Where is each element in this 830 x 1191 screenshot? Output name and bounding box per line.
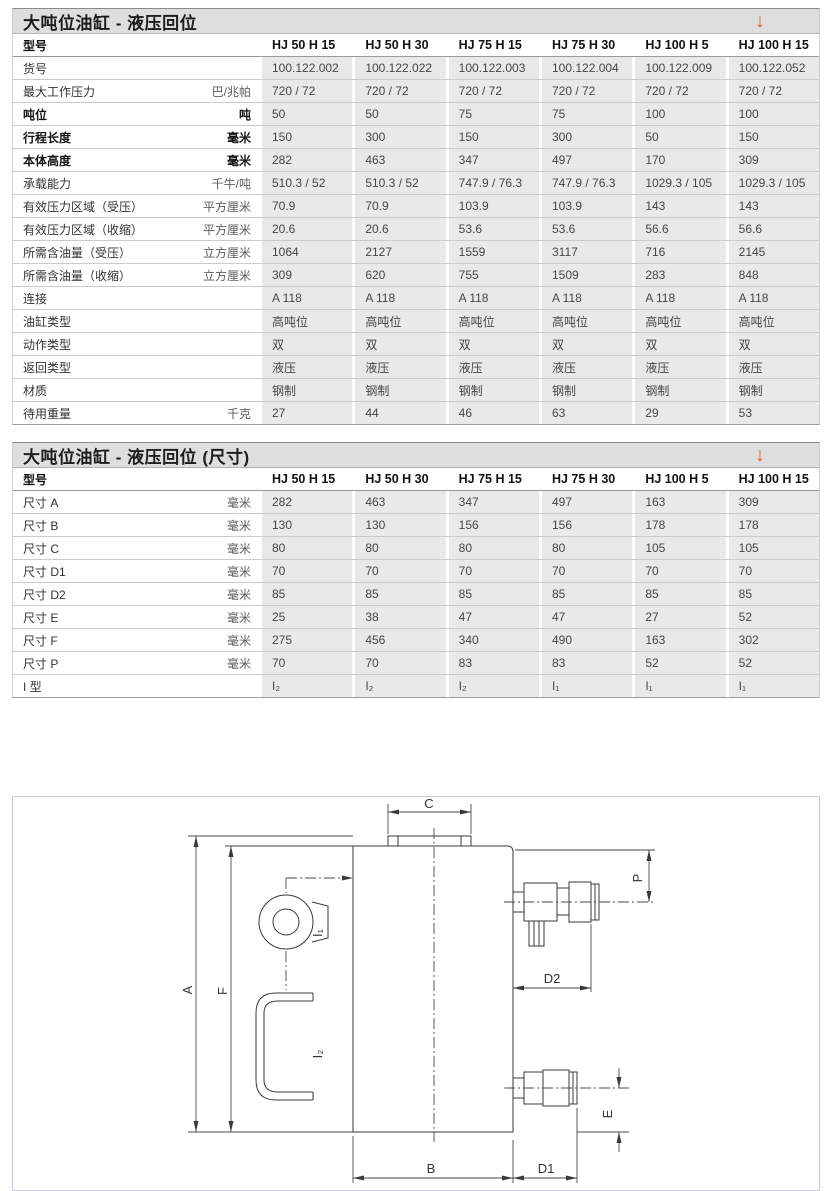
row-label-cell: 材质 [13, 379, 259, 401]
row-unit: 千克 [227, 405, 251, 422]
dimension-B-D1: B D1 [353, 1108, 577, 1183]
model-header-label: 型号 [13, 34, 259, 56]
label-I1: I₁ [310, 928, 325, 937]
table-row: 尺寸 P毫米707083835252 [13, 652, 819, 675]
table-row: 尺寸 D1毫米707070707070 [13, 560, 819, 583]
value-cell: 747.9 / 76.3 [542, 172, 632, 194]
value-cell: 85 [729, 583, 819, 605]
value-cell: 70 [542, 560, 632, 582]
table-row: 有效压力区域（受压）平方厘米70.970.9103.9103.9143143 [13, 195, 819, 218]
value-cell: 80 [449, 537, 539, 559]
value-cell: 100.122.003 [449, 57, 539, 79]
row-unit: 千牛/吨 [212, 175, 251, 192]
value-cell: 163 [635, 629, 725, 651]
value-cell: A 118 [635, 287, 725, 309]
row-label: 尺寸 B [23, 517, 58, 534]
row-unit: 毫米 [227, 540, 251, 557]
model-header-cell: HJ 50 H 15 [262, 468, 352, 490]
value-cell: 75 [542, 103, 632, 125]
value-cell: 38 [355, 606, 445, 628]
value-cell: A 118 [355, 287, 445, 309]
value-cell: 275 [262, 629, 352, 651]
row-label: 最大工作压力 [23, 83, 95, 100]
value-cell: 143 [729, 195, 819, 217]
value-cell: 53.6 [449, 218, 539, 240]
value-cell: 双 [542, 333, 632, 355]
value-cell: 463 [355, 491, 445, 513]
value-cell: 103.9 [449, 195, 539, 217]
row-unit: 毫米 [227, 129, 251, 146]
value-cell: 105 [635, 537, 725, 559]
row-label: 行程长度 [23, 129, 71, 146]
technical-drawing-box: A F C [12, 796, 820, 1191]
row-label: 尺寸 E [23, 609, 58, 626]
row-label-cell: I 型 [13, 675, 259, 697]
table-row: 返回类型液压液压液压液压液压液压 [13, 356, 819, 379]
value-cell: 716 [635, 241, 725, 263]
value-cell: 100.122.022 [355, 57, 445, 79]
spec-table-main: 大吨位油缸 - 液压回位 ↓ 型号HJ 50 H 15HJ 50 H 30HJ … [12, 8, 820, 425]
row-label-cell: 尺寸 D1毫米 [13, 560, 259, 582]
label-P: P [630, 874, 645, 883]
value-cell: 1029.3 / 105 [635, 172, 725, 194]
row-label: 连接 [23, 290, 47, 307]
value-cell: 70 [449, 560, 539, 582]
row-label-cell: 最大工作压力巴/兆帕 [13, 80, 259, 102]
value-cell: 双 [355, 333, 445, 355]
row-label-cell: 有效压力区域（受压）平方厘米 [13, 195, 259, 217]
row-label-cell: 货号 [13, 57, 259, 79]
model-header-cell: HJ 100 H 15 [729, 468, 819, 490]
value-cell: 高吨位 [635, 310, 725, 332]
value-cell: 755 [449, 264, 539, 286]
value-cell: 70 [262, 560, 352, 582]
table-row: 尺寸 E毫米253847472752 [13, 606, 819, 629]
row-label: 尺寸 D2 [23, 586, 66, 603]
value-cell: 高吨位 [262, 310, 352, 332]
table-row: 尺寸 B毫米130130156156178178 [13, 514, 819, 537]
cylinder-body [353, 828, 513, 1142]
value-cell: 50 [262, 103, 352, 125]
value-cell: 液压 [729, 356, 819, 378]
value-cell: 高吨位 [449, 310, 539, 332]
model-header-cell: HJ 75 H 15 [449, 34, 539, 56]
row-label: 尺寸 F [23, 632, 58, 649]
row-label-cell: 行程长度毫米 [13, 126, 259, 148]
row-label: 油缸类型 [23, 313, 71, 330]
label-D2: D2 [544, 971, 561, 986]
model-header-cell: HJ 50 H 30 [355, 34, 445, 56]
row-label: 承载能力 [23, 175, 71, 192]
value-cell: 液压 [355, 356, 445, 378]
value-cell: 130 [355, 514, 445, 536]
model-header-label: 型号 [13, 468, 259, 490]
row-label-cell: 所需含油量（受压）立方厘米 [13, 241, 259, 263]
value-cell: 105 [729, 537, 819, 559]
value-cell: 720 / 72 [635, 80, 725, 102]
value-cell: 720 / 72 [355, 80, 445, 102]
model-header-row: 型号HJ 50 H 15HJ 50 H 30HJ 75 H 15HJ 75 H … [13, 468, 819, 491]
row-unit: 平方厘米 [203, 221, 251, 238]
value-cell: 510.3 / 52 [262, 172, 352, 194]
row-unit: 毫米 [227, 632, 251, 649]
value-cell: 钢制 [262, 379, 352, 401]
cylinder-drawing: A F C [13, 797, 819, 1188]
row-label-cell: 尺寸 P毫米 [13, 652, 259, 674]
row-unit: 毫米 [227, 152, 251, 169]
value-cell: 150 [729, 126, 819, 148]
label-E: E [600, 1109, 615, 1118]
value-cell: 70 [635, 560, 725, 582]
value-cell: 52 [729, 606, 819, 628]
value-cell: 100.122.052 [729, 57, 819, 79]
row-label: 尺寸 A [23, 494, 58, 511]
row-label-cell: 待用重量千克 [13, 402, 259, 424]
value-cell: 497 [542, 149, 632, 171]
value-cell: I₁ [542, 675, 632, 697]
value-cell: 83 [449, 652, 539, 674]
value-cell: 100 [635, 103, 725, 125]
value-cell: A 118 [449, 287, 539, 309]
row-label-cell: 尺寸 A毫米 [13, 491, 259, 513]
row-label: 尺寸 D1 [23, 563, 66, 580]
value-cell: 1064 [262, 241, 352, 263]
row-unit: 立方厘米 [203, 244, 251, 261]
dimension-E: E [577, 1068, 629, 1152]
value-cell: 3117 [542, 241, 632, 263]
value-cell: I₁ [635, 675, 725, 697]
spacer [12, 425, 820, 442]
row-label-cell: 本体高度毫米 [13, 149, 259, 171]
model-header-cell: HJ 75 H 15 [449, 468, 539, 490]
label-C: C [424, 797, 433, 811]
row-label-cell: 吨位吨 [13, 103, 259, 125]
value-cell: 高吨位 [542, 310, 632, 332]
value-cell: 70 [729, 560, 819, 582]
dimension-F: F [215, 846, 353, 1132]
value-cell: 80 [542, 537, 632, 559]
value-cell: 63 [542, 402, 632, 424]
value-cell: 1509 [542, 264, 632, 286]
value-cell: A 118 [262, 287, 352, 309]
table-row: 所需含油量（受压）立方厘米10642127155931177162145 [13, 241, 819, 264]
value-cell: I₂ [449, 675, 539, 697]
value-cell: 50 [355, 103, 445, 125]
value-cell: 20.6 [262, 218, 352, 240]
value-cell: 双 [262, 333, 352, 355]
label-D1: D1 [538, 1161, 555, 1176]
table-row: 尺寸 C毫米80808080105105 [13, 537, 819, 560]
model-header-cell: HJ 75 H 30 [542, 468, 632, 490]
value-cell: 156 [542, 514, 632, 536]
value-cell: 29 [635, 402, 725, 424]
spec-table-dimensions: 大吨位油缸 - 液压回位 (尺寸) ↓ 型号HJ 50 H 15HJ 50 H … [12, 442, 820, 698]
lower-coupler [504, 1070, 631, 1106]
value-cell: 463 [355, 149, 445, 171]
row-label-cell: 所需含油量（收缩）立方厘米 [13, 264, 259, 286]
dimension-C: C [388, 797, 471, 834]
value-cell: 150 [449, 126, 539, 148]
value-cell: 56.6 [635, 218, 725, 240]
value-cell: 720 / 72 [262, 80, 352, 102]
row-label: 尺寸 P [23, 655, 58, 672]
value-cell: 52 [729, 652, 819, 674]
table-row: 尺寸 A毫米282463347497163309 [13, 491, 819, 514]
row-unit: 平方厘米 [203, 198, 251, 215]
value-cell: 747.9 / 76.3 [449, 172, 539, 194]
value-cell: I₁ [729, 675, 819, 697]
table2-title: 大吨位油缸 - 液压回位 (尺寸) [23, 443, 250, 468]
model-header-cell: HJ 50 H 30 [355, 468, 445, 490]
row-label: 有效压力区域（受压） [23, 198, 143, 215]
table-row: 本体高度毫米282463347497170309 [13, 149, 819, 172]
value-cell: 钢制 [355, 379, 445, 401]
upper-coupler [504, 882, 656, 946]
row-label-cell: 连接 [13, 287, 259, 309]
value-cell: 50 [635, 126, 725, 148]
value-cell: 309 [729, 491, 819, 513]
row-label: 货号 [23, 60, 47, 77]
value-cell: 25 [262, 606, 352, 628]
value-cell: 双 [635, 333, 725, 355]
label-A: A [180, 985, 195, 994]
value-cell: 47 [449, 606, 539, 628]
table-row: I 型I₂I₂I₂I₁I₁I₁ [13, 675, 819, 697]
row-label-cell: 尺寸 B毫米 [13, 514, 259, 536]
value-cell: 309 [262, 264, 352, 286]
row-label: 本体高度 [23, 152, 71, 169]
row-unit: 毫米 [227, 563, 251, 580]
row-unit: 立方厘米 [203, 267, 251, 284]
row-label: 所需含油量（收缩） [23, 267, 131, 284]
value-cell: 347 [449, 491, 539, 513]
value-cell: 309 [729, 149, 819, 171]
row-label-cell: 尺寸 E毫米 [13, 606, 259, 628]
value-cell: 282 [262, 491, 352, 513]
value-cell: 钢制 [542, 379, 632, 401]
table-body: 型号HJ 50 H 15HJ 50 H 30HJ 75 H 15HJ 75 H … [13, 34, 819, 424]
row-label-cell: 返回类型 [13, 356, 259, 378]
row-label-cell: 承载能力千牛/吨 [13, 172, 259, 194]
value-cell: 100.122.004 [542, 57, 632, 79]
row-label-cell: 动作类型 [13, 333, 259, 355]
row-unit: 巴/兆帕 [212, 83, 251, 100]
value-cell: 130 [262, 514, 352, 536]
value-cell: 85 [635, 583, 725, 605]
table1-title: 大吨位油缸 - 液压回位 [23, 9, 197, 34]
row-unit: 毫米 [227, 494, 251, 511]
value-cell: 302 [729, 629, 819, 651]
row-label-cell: 油缸类型 [13, 310, 259, 332]
dimension-D2: D2 [513, 924, 591, 992]
row-unit: 毫米 [227, 517, 251, 534]
value-cell: 340 [449, 629, 539, 651]
value-cell: 85 [542, 583, 632, 605]
value-cell: 46 [449, 402, 539, 424]
table-row: 油缸类型高吨位高吨位高吨位高吨位高吨位高吨位 [13, 310, 819, 333]
value-cell: 52 [635, 652, 725, 674]
value-cell: 双 [729, 333, 819, 355]
table-body: 型号HJ 50 H 15HJ 50 H 30HJ 75 H 15HJ 75 H … [13, 468, 819, 697]
value-cell: 282 [262, 149, 352, 171]
value-cell: 100.122.002 [262, 57, 352, 79]
value-cell: 848 [729, 264, 819, 286]
row-label: 待用重量 [23, 405, 71, 422]
carry-handle: I₂ [256, 993, 325, 1100]
value-cell: 150 [262, 126, 352, 148]
value-cell: 100 [729, 103, 819, 125]
value-cell: 490 [542, 629, 632, 651]
lifting-eye: I₁ [259, 876, 353, 991]
model-header-cell: HJ 100 H 5 [635, 34, 725, 56]
value-cell: 钢制 [635, 379, 725, 401]
value-cell: 347 [449, 149, 539, 171]
label-F: F [215, 987, 230, 995]
table-row: 最大工作压力巴/兆帕720 / 72720 / 72720 / 72720 / … [13, 80, 819, 103]
row-label-cell: 尺寸 F毫米 [13, 629, 259, 651]
value-cell: 620 [355, 264, 445, 286]
value-cell: 497 [542, 491, 632, 513]
row-label: 有效压力区域（收缩） [23, 221, 143, 238]
value-cell: 103.9 [542, 195, 632, 217]
value-cell: 300 [542, 126, 632, 148]
value-cell: 75 [449, 103, 539, 125]
value-cell: 液压 [262, 356, 352, 378]
value-cell: 85 [449, 583, 539, 605]
value-cell: 70 [355, 652, 445, 674]
table-row: 货号100.122.002100.122.022100.122.003100.1… [13, 57, 819, 80]
value-cell: 液压 [635, 356, 725, 378]
value-cell: 178 [635, 514, 725, 536]
table-row: 动作类型双双双双双双 [13, 333, 819, 356]
row-unit: 毫米 [227, 586, 251, 603]
value-cell: 70.9 [262, 195, 352, 217]
row-unit: 毫米 [227, 609, 251, 626]
value-cell: A 118 [729, 287, 819, 309]
table-row: 行程长度毫米15030015030050150 [13, 126, 819, 149]
value-cell: 163 [635, 491, 725, 513]
row-label: 返回类型 [23, 359, 71, 376]
value-cell: 456 [355, 629, 445, 651]
label-B: B [427, 1161, 436, 1176]
value-cell: 156 [449, 514, 539, 536]
value-cell: 2127 [355, 241, 445, 263]
value-cell: 27 [262, 402, 352, 424]
value-cell: 20.6 [355, 218, 445, 240]
value-cell: 钢制 [729, 379, 819, 401]
value-cell: 510.3 / 52 [355, 172, 445, 194]
download-arrow-icon[interactable]: ↓ [755, 445, 765, 465]
value-cell: 720 / 72 [729, 80, 819, 102]
value-cell: 85 [262, 583, 352, 605]
row-label: 所需含油量（受压） [23, 244, 131, 261]
value-cell: 2145 [729, 241, 819, 263]
table-row: 所需含油量（收缩）立方厘米3096207551509283848 [13, 264, 819, 287]
label-I2: I₂ [310, 1050, 325, 1059]
table-row: 连接A 118A 118A 118A 118A 118A 118 [13, 287, 819, 310]
model-header-cell: HJ 100 H 5 [635, 468, 725, 490]
value-cell: 178 [729, 514, 819, 536]
model-header-cell: HJ 75 H 30 [542, 34, 632, 56]
model-header-cell: HJ 50 H 15 [262, 34, 352, 56]
value-cell: I₂ [262, 675, 352, 697]
row-unit: 吨 [239, 106, 251, 123]
table-row: 材质钢制钢制钢制钢制钢制钢制 [13, 379, 819, 402]
value-cell: 高吨位 [729, 310, 819, 332]
value-cell: 液压 [542, 356, 632, 378]
table-row: 待用重量千克274446632953 [13, 402, 819, 424]
table-row: 尺寸 F毫米275456340490163302 [13, 629, 819, 652]
value-cell: 53 [729, 402, 819, 424]
value-cell: 170 [635, 149, 725, 171]
dimension-P: P [515, 850, 655, 902]
value-cell: 85 [355, 583, 445, 605]
row-label-cell: 尺寸 D2毫米 [13, 583, 259, 605]
value-cell: 70 [355, 560, 445, 582]
value-cell: 27 [635, 606, 725, 628]
row-label: 材质 [23, 382, 47, 399]
value-cell: 1029.3 / 105 [729, 172, 819, 194]
value-cell: 83 [542, 652, 632, 674]
value-cell: 44 [355, 402, 445, 424]
row-label: 动作类型 [23, 336, 71, 353]
value-cell: 720 / 72 [542, 80, 632, 102]
value-cell: 高吨位 [355, 310, 445, 332]
value-cell: 70 [262, 652, 352, 674]
value-cell: 283 [635, 264, 725, 286]
value-cell: I₂ [355, 675, 445, 697]
value-cell: 300 [355, 126, 445, 148]
value-cell: 钢制 [449, 379, 539, 401]
row-label: I 型 [23, 678, 42, 695]
value-cell: 双 [449, 333, 539, 355]
value-cell: 70.9 [355, 195, 445, 217]
value-cell: 720 / 72 [449, 80, 539, 102]
model-header-cell: HJ 100 H 15 [729, 34, 819, 56]
table-row: 有效压力区域（收缩）平方厘米20.620.653.653.656.656.6 [13, 218, 819, 241]
row-unit: 毫米 [227, 655, 251, 672]
row-label-cell: 尺寸 C毫米 [13, 537, 259, 559]
catalog-page: 大吨位油缸 - 液压回位 ↓ 型号HJ 50 H 15HJ 50 H 30HJ … [0, 0, 830, 1191]
table-row: 吨位吨50507575100100 [13, 103, 819, 126]
value-cell: 47 [542, 606, 632, 628]
value-cell: 80 [355, 537, 445, 559]
row-label: 尺寸 C [23, 540, 59, 557]
value-cell: 143 [635, 195, 725, 217]
model-header-row: 型号HJ 50 H 15HJ 50 H 30HJ 75 H 15HJ 75 H … [13, 34, 819, 57]
table1-title-bar: 大吨位油缸 - 液压回位 ↓ [13, 9, 819, 34]
value-cell: 1559 [449, 241, 539, 263]
table2-title-bar: 大吨位油缸 - 液压回位 (尺寸) ↓ [13, 443, 819, 468]
row-label-cell: 有效压力区域（收缩）平方厘米 [13, 218, 259, 240]
download-arrow-icon[interactable]: ↓ [755, 11, 765, 31]
table-row: 尺寸 D2毫米858585858585 [13, 583, 819, 606]
value-cell: 53.6 [542, 218, 632, 240]
value-cell: A 118 [542, 287, 632, 309]
value-cell: 液压 [449, 356, 539, 378]
row-label: 吨位 [23, 106, 47, 123]
table-row: 承载能力千牛/吨510.3 / 52510.3 / 52747.9 / 76.3… [13, 172, 819, 195]
value-cell: 56.6 [729, 218, 819, 240]
value-cell: 80 [262, 537, 352, 559]
value-cell: 100.122.009 [635, 57, 725, 79]
